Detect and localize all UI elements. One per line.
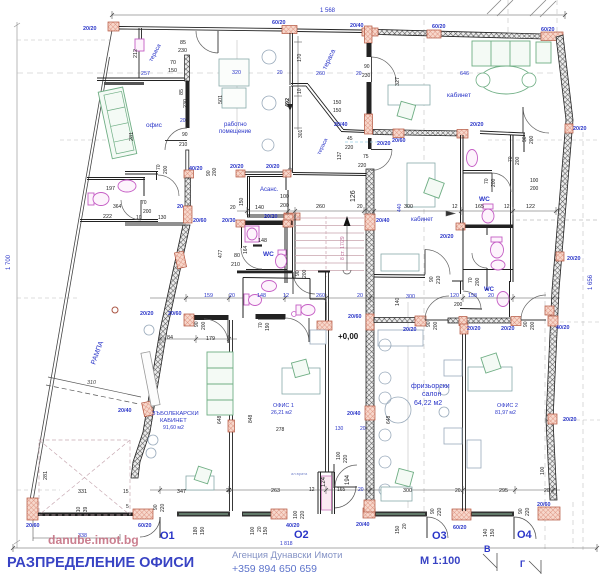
svg-text:45: 45 bbox=[347, 136, 353, 142]
svg-text:90: 90 bbox=[182, 132, 188, 138]
svg-text:1 700: 1 700 bbox=[6, 254, 12, 270]
svg-text:364: 364 bbox=[113, 204, 122, 210]
svg-text:100: 100 bbox=[336, 451, 342, 460]
svg-text:222: 222 bbox=[103, 214, 112, 220]
svg-text:124: 124 bbox=[321, 476, 327, 487]
svg-text:КАБИНЕТ: КАБИНЕТ bbox=[160, 418, 187, 424]
svg-text:20/60: 20/60 bbox=[348, 314, 362, 320]
svg-text:220: 220 bbox=[437, 507, 443, 516]
svg-text:220: 220 bbox=[160, 503, 166, 512]
svg-text:310: 310 bbox=[87, 380, 96, 386]
svg-text:20: 20 bbox=[544, 488, 550, 494]
svg-text:20/60: 20/60 bbox=[392, 138, 406, 144]
svg-text:170: 170 bbox=[297, 53, 303, 62]
svg-text:200: 200 bbox=[212, 167, 218, 176]
svg-text:20/60: 20/60 bbox=[168, 311, 182, 317]
svg-text:О1: О1 bbox=[160, 530, 175, 542]
svg-text:20: 20 bbox=[229, 293, 235, 299]
svg-text:20/60: 20/60 bbox=[26, 523, 40, 529]
svg-text:120: 120 bbox=[450, 293, 459, 299]
svg-text:210: 210 bbox=[231, 262, 240, 268]
svg-text:70: 70 bbox=[468, 277, 474, 283]
svg-text:ОФИС 2: ОФИС 2 bbox=[497, 403, 518, 409]
svg-text:477: 477 bbox=[218, 249, 224, 258]
svg-text:100: 100 bbox=[530, 178, 539, 184]
svg-text:70: 70 bbox=[156, 164, 162, 170]
svg-text:12: 12 bbox=[309, 487, 315, 493]
svg-text:90: 90 bbox=[522, 136, 528, 142]
svg-text:20: 20 bbox=[230, 205, 236, 211]
svg-text:190: 190 bbox=[265, 322, 271, 331]
svg-text:20: 20 bbox=[360, 426, 366, 432]
svg-text:20/40: 20/40 bbox=[356, 522, 370, 528]
svg-text:WC: WC bbox=[484, 287, 495, 293]
svg-text:300: 300 bbox=[406, 294, 415, 300]
svg-text:90: 90 bbox=[430, 508, 436, 514]
svg-text:212: 212 bbox=[133, 49, 139, 58]
svg-text:200: 200 bbox=[201, 321, 207, 330]
svg-text:648: 648 bbox=[386, 415, 392, 424]
svg-text:12: 12 bbox=[452, 204, 458, 210]
svg-text:20: 20 bbox=[356, 71, 362, 77]
svg-text:ЗЪБОЛЕКАРСКИ: ЗЪБОЛЕКАРСКИ bbox=[152, 411, 199, 417]
svg-text:20: 20 bbox=[488, 293, 494, 299]
svg-text:140: 140 bbox=[483, 528, 489, 537]
svg-text:20/20: 20/20 bbox=[230, 164, 244, 170]
svg-text:20/40: 20/40 bbox=[347, 411, 361, 417]
svg-text:200: 200 bbox=[280, 203, 289, 209]
svg-text:200: 200 bbox=[475, 277, 481, 286]
svg-text:278: 278 bbox=[276, 427, 285, 433]
svg-text:80: 80 bbox=[234, 253, 240, 259]
svg-text:20/30: 20/30 bbox=[222, 218, 236, 224]
svg-text:20/20: 20/20 bbox=[140, 311, 154, 317]
svg-text:салон: салон bbox=[422, 391, 441, 398]
svg-text:85: 85 bbox=[180, 40, 186, 46]
svg-text:200: 200 bbox=[433, 321, 439, 330]
svg-text:20/40: 20/40 bbox=[350, 23, 364, 29]
svg-text:100: 100 bbox=[540, 466, 546, 475]
svg-text:90: 90 bbox=[429, 276, 435, 282]
svg-text:26,21 м2: 26,21 м2 bbox=[271, 410, 292, 416]
svg-text:12: 12 bbox=[504, 204, 510, 210]
svg-text:263: 263 bbox=[271, 488, 280, 494]
svg-text:165: 165 bbox=[337, 487, 346, 493]
svg-text:126: 126 bbox=[350, 190, 357, 202]
svg-text:60/20: 60/20 bbox=[453, 525, 467, 531]
svg-text:194: 194 bbox=[345, 474, 351, 485]
svg-text:О2: О2 bbox=[294, 529, 309, 541]
svg-text:85: 85 bbox=[179, 89, 185, 95]
svg-text:90: 90 bbox=[364, 64, 370, 70]
svg-text:150: 150 bbox=[263, 526, 269, 535]
svg-text:20: 20 bbox=[180, 118, 186, 124]
svg-text:20/20: 20/20 bbox=[266, 164, 280, 170]
svg-text:200: 200 bbox=[143, 209, 152, 215]
svg-text:40/20: 40/20 bbox=[556, 325, 570, 331]
svg-text:140: 140 bbox=[255, 205, 264, 211]
svg-text:О4: О4 bbox=[517, 529, 533, 541]
svg-text:230: 230 bbox=[183, 99, 189, 108]
svg-text:200: 200 bbox=[491, 178, 497, 187]
svg-text:20/20: 20/20 bbox=[563, 417, 577, 423]
svg-text:150: 150 bbox=[333, 100, 342, 106]
svg-text:331: 331 bbox=[78, 489, 87, 495]
svg-text:200: 200 bbox=[530, 186, 539, 192]
svg-text:301: 301 bbox=[298, 129, 304, 138]
svg-text:130: 130 bbox=[158, 215, 167, 221]
svg-text:60/20: 60/20 bbox=[541, 27, 555, 33]
svg-text:281: 281 bbox=[129, 132, 135, 141]
svg-text:ал.врата: ал.врата bbox=[291, 471, 308, 476]
svg-text:20/20: 20/20 bbox=[377, 141, 391, 147]
svg-text:5: 5 bbox=[126, 504, 129, 510]
svg-text:646: 646 bbox=[460, 71, 469, 77]
svg-text:440: 440 bbox=[397, 203, 403, 212]
svg-text:20/20: 20/20 bbox=[573, 126, 587, 132]
svg-text:230: 230 bbox=[178, 48, 187, 54]
svg-text:20/40: 20/40 bbox=[334, 122, 348, 128]
svg-text:81,97 м2: 81,97 м2 bbox=[495, 410, 516, 416]
svg-text:295: 295 bbox=[499, 488, 508, 494]
svg-text:20: 20 bbox=[358, 487, 364, 493]
svg-text:100: 100 bbox=[293, 510, 299, 519]
svg-text:148: 148 bbox=[258, 238, 267, 244]
svg-text:12: 12 bbox=[283, 293, 289, 299]
svg-text:Асанс.: Асанс. bbox=[260, 187, 279, 193]
svg-text:1 568: 1 568 bbox=[320, 8, 336, 14]
svg-text:220: 220 bbox=[525, 507, 531, 516]
svg-text:40/20: 40/20 bbox=[189, 166, 203, 172]
svg-text:310: 310 bbox=[76, 506, 82, 515]
svg-text:64,22 м2: 64,22 м2 bbox=[414, 400, 442, 407]
svg-text:1 818: 1 818 bbox=[280, 541, 293, 547]
svg-text:60/20: 60/20 bbox=[138, 523, 152, 529]
svg-text:130: 130 bbox=[335, 426, 344, 432]
svg-text:100: 100 bbox=[250, 526, 256, 535]
svg-text:220: 220 bbox=[343, 454, 349, 463]
svg-text:20/20: 20/20 bbox=[467, 326, 481, 332]
svg-text:20: 20 bbox=[357, 204, 363, 210]
svg-text:20: 20 bbox=[357, 293, 363, 299]
svg-text:20: 20 bbox=[402, 523, 408, 529]
svg-text:260: 260 bbox=[316, 204, 325, 210]
svg-text:200: 200 bbox=[529, 135, 535, 144]
svg-text:М 1:100: М 1:100 bbox=[420, 555, 460, 567]
svg-text:20/20: 20/20 bbox=[440, 234, 454, 240]
svg-text:90: 90 bbox=[426, 321, 432, 327]
svg-text:220: 220 bbox=[345, 145, 354, 151]
svg-text:260: 260 bbox=[316, 293, 325, 299]
svg-text:327: 327 bbox=[395, 77, 401, 86]
svg-text:70: 70 bbox=[508, 156, 514, 162]
svg-text:257: 257 bbox=[141, 71, 150, 77]
svg-text:20/20: 20/20 bbox=[567, 256, 581, 262]
svg-text:200: 200 bbox=[302, 269, 308, 278]
svg-text:danube.imot.bg: danube.imot.bg bbox=[48, 533, 139, 547]
svg-text:200: 200 bbox=[454, 302, 463, 308]
svg-text:150: 150 bbox=[333, 108, 342, 114]
svg-text:180: 180 bbox=[193, 526, 199, 535]
svg-text:150: 150 bbox=[395, 525, 401, 534]
svg-text:260: 260 bbox=[316, 71, 325, 77]
svg-text:20/40: 20/40 bbox=[118, 408, 132, 414]
svg-text:90: 90 bbox=[153, 504, 159, 510]
svg-text:150: 150 bbox=[239, 197, 245, 206]
svg-text:150: 150 bbox=[168, 68, 177, 74]
svg-text:РАЗПРЕДЕЛЕНИЕ ОФИСИ: РАЗПРЕДЕЛЕНИЕ ОФИСИ bbox=[7, 555, 194, 571]
svg-text:20: 20 bbox=[277, 70, 283, 76]
svg-text:О3: О3 bbox=[432, 530, 447, 542]
svg-text:210: 210 bbox=[436, 275, 442, 284]
svg-text:140: 140 bbox=[395, 297, 401, 306]
svg-text:300: 300 bbox=[403, 488, 412, 494]
svg-text:320: 320 bbox=[232, 70, 241, 76]
svg-text:90: 90 bbox=[295, 270, 301, 276]
svg-text:10: 10 bbox=[297, 88, 303, 94]
svg-text:148: 148 bbox=[257, 293, 266, 299]
svg-text:работно: работно bbox=[224, 122, 247, 128]
svg-text:90: 90 bbox=[518, 508, 524, 514]
svg-text:+0,00: +0,00 bbox=[338, 332, 359, 341]
svg-text:848: 848 bbox=[248, 414, 254, 423]
svg-text:20: 20 bbox=[226, 488, 232, 494]
svg-text:20/20: 20/20 bbox=[470, 122, 484, 128]
svg-text:70: 70 bbox=[170, 60, 176, 66]
svg-text:WC: WC bbox=[263, 251, 274, 258]
svg-text:+359 894 650 659: +359 894 650 659 bbox=[232, 563, 317, 575]
svg-text:70: 70 bbox=[484, 178, 490, 184]
svg-text:200: 200 bbox=[515, 156, 521, 165]
svg-text:200: 200 bbox=[163, 165, 169, 174]
svg-text:20/60: 20/60 bbox=[193, 218, 207, 224]
svg-text:190: 190 bbox=[200, 526, 206, 535]
svg-text:20/20: 20/20 bbox=[264, 214, 278, 220]
svg-text:10: 10 bbox=[136, 215, 142, 221]
svg-text:кабинет: кабинет bbox=[411, 217, 433, 223]
svg-text:В: В bbox=[484, 544, 491, 554]
svg-text:20/40: 20/40 bbox=[376, 218, 390, 224]
svg-text:WC: WC bbox=[479, 196, 490, 203]
svg-text:137: 137 bbox=[337, 151, 343, 160]
svg-text:1 656: 1 656 bbox=[588, 274, 594, 290]
svg-text:60/20: 60/20 bbox=[432, 24, 446, 30]
svg-text:100: 100 bbox=[280, 194, 289, 200]
svg-text:239: 239 bbox=[83, 506, 89, 515]
svg-text:165: 165 bbox=[475, 204, 484, 210]
svg-text:150: 150 bbox=[490, 528, 496, 537]
svg-text:347: 347 bbox=[177, 489, 186, 495]
svg-text:8 ст. 17/29: 8 ст. 17/29 bbox=[340, 236, 346, 260]
svg-text:158: 158 bbox=[468, 293, 477, 299]
svg-text:кабинет: кабинет bbox=[447, 91, 471, 99]
svg-text:197: 197 bbox=[106, 186, 115, 192]
svg-text:84: 84 bbox=[167, 335, 173, 341]
svg-text:91,60 м2: 91,60 м2 bbox=[163, 425, 184, 431]
svg-text:Агенция Дунавски Имоти: Агенция Дунавски Имоти bbox=[232, 550, 342, 561]
svg-text:164: 164 bbox=[243, 245, 249, 254]
svg-text:20: 20 bbox=[455, 488, 461, 494]
svg-text:220: 220 bbox=[358, 163, 367, 169]
svg-text:200: 200 bbox=[530, 321, 536, 330]
svg-text:20: 20 bbox=[177, 204, 183, 210]
svg-text:159: 159 bbox=[204, 293, 213, 299]
svg-text:70: 70 bbox=[258, 322, 264, 328]
svg-text:501: 501 bbox=[218, 95, 224, 104]
svg-text:648: 648 bbox=[217, 415, 223, 424]
svg-text:75: 75 bbox=[363, 154, 369, 160]
svg-text:492: 492 bbox=[285, 98, 291, 107]
svg-text:20/20: 20/20 bbox=[83, 26, 97, 32]
svg-text:122: 122 bbox=[526, 204, 535, 210]
svg-text:90: 90 bbox=[523, 321, 529, 327]
svg-text:179: 179 bbox=[206, 336, 215, 342]
svg-text:помещение: помещение bbox=[219, 129, 252, 135]
svg-text:300: 300 bbox=[404, 204, 413, 210]
svg-text:230: 230 bbox=[362, 73, 371, 79]
svg-text:15: 15 bbox=[123, 489, 129, 495]
svg-text:20/20: 20/20 bbox=[403, 327, 417, 333]
svg-text:220: 220 bbox=[300, 510, 306, 519]
svg-text:90: 90 bbox=[194, 321, 200, 327]
svg-text:Г: Г bbox=[520, 559, 525, 569]
svg-text:210: 210 bbox=[179, 142, 188, 148]
svg-text:ОФИС 1: ОФИС 1 bbox=[273, 403, 294, 409]
svg-text:офис: офис bbox=[146, 122, 163, 129]
svg-text:70: 70 bbox=[141, 200, 147, 206]
svg-text:20/20: 20/20 bbox=[501, 326, 515, 332]
svg-text:20/60: 20/60 bbox=[537, 502, 551, 508]
svg-text:60/20: 60/20 bbox=[272, 20, 286, 26]
svg-text:281: 281 bbox=[43, 471, 49, 480]
svg-text:фризьорски: фризьорски bbox=[411, 383, 450, 390]
